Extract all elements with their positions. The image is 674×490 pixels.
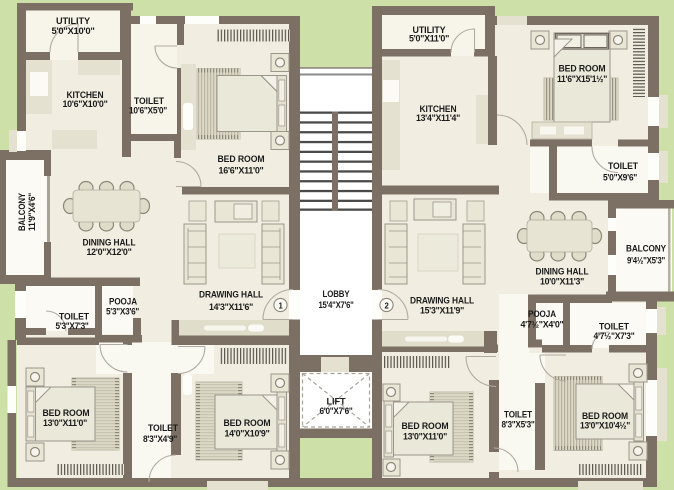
svg-text:10'6"X5'0": 10'6"X5'0" (129, 105, 167, 116)
svg-text:13'0"X11'0": 13'0"X11'0" (403, 431, 447, 442)
svg-text:5'0"X11'0": 5'0"X11'0" (409, 32, 449, 43)
svg-text:16'6"X11'0": 16'6"X11'0" (219, 165, 264, 176)
svg-text:13'0"X11'0": 13'0"X11'0" (43, 417, 87, 428)
svg-text:8'3"X4'9": 8'3"X4'9" (143, 433, 177, 444)
svg-text:8'3"X5'3": 8'3"X5'3" (502, 419, 535, 430)
svg-text:10'0"X11'3": 10'0"X11'3" (540, 276, 584, 287)
svg-text:5'3"X3'6": 5'3"X3'6" (106, 306, 139, 317)
svg-text:13'4"X11'4": 13'4"X11'4" (416, 112, 460, 123)
svg-text:TOILET: TOILET (608, 161, 638, 172)
svg-text:DRAWING HALL: DRAWING HALL (199, 290, 263, 301)
svg-text:6'0"X7'6": 6'0"X7'6" (320, 405, 353, 416)
svg-text:5'0"X9'6": 5'0"X9'6" (603, 172, 637, 183)
svg-text:11'9"X4'6": 11'9"X4'6" (26, 193, 37, 231)
svg-text:5'3"X7'3": 5'3"X7'3" (56, 320, 89, 331)
svg-text:10'6"X10'0": 10'6"X10'0" (63, 98, 108, 109)
svg-text:9'4½"X5'3": 9'4½"X5'3" (627, 255, 665, 266)
svg-text:4'7½"X7'3": 4'7½"X7'3" (594, 330, 635, 341)
svg-text:14'3"X11'6": 14'3"X11'6" (209, 301, 253, 312)
svg-text:15'3"X11'9": 15'3"X11'9" (420, 305, 464, 316)
svg-text:14'0"X10'9": 14'0"X10'9" (225, 428, 270, 439)
svg-text:12'0"X12'0": 12'0"X12'0" (87, 246, 132, 257)
svg-text:BED ROOM: BED ROOM (218, 154, 265, 165)
svg-text:BALCONY: BALCONY (626, 244, 667, 255)
svg-text:4'7½"X4'0": 4'7½"X4'0" (521, 319, 564, 330)
svg-text:5'0"X10'0": 5'0"X10'0" (52, 25, 95, 36)
svg-text:11'6"X15'1½": 11'6"X15'1½" (557, 73, 607, 84)
svg-text:15'4"X7'6": 15'4"X7'6" (319, 299, 354, 310)
svg-text:13'0"X10'4½": 13'0"X10'4½" (580, 420, 630, 431)
